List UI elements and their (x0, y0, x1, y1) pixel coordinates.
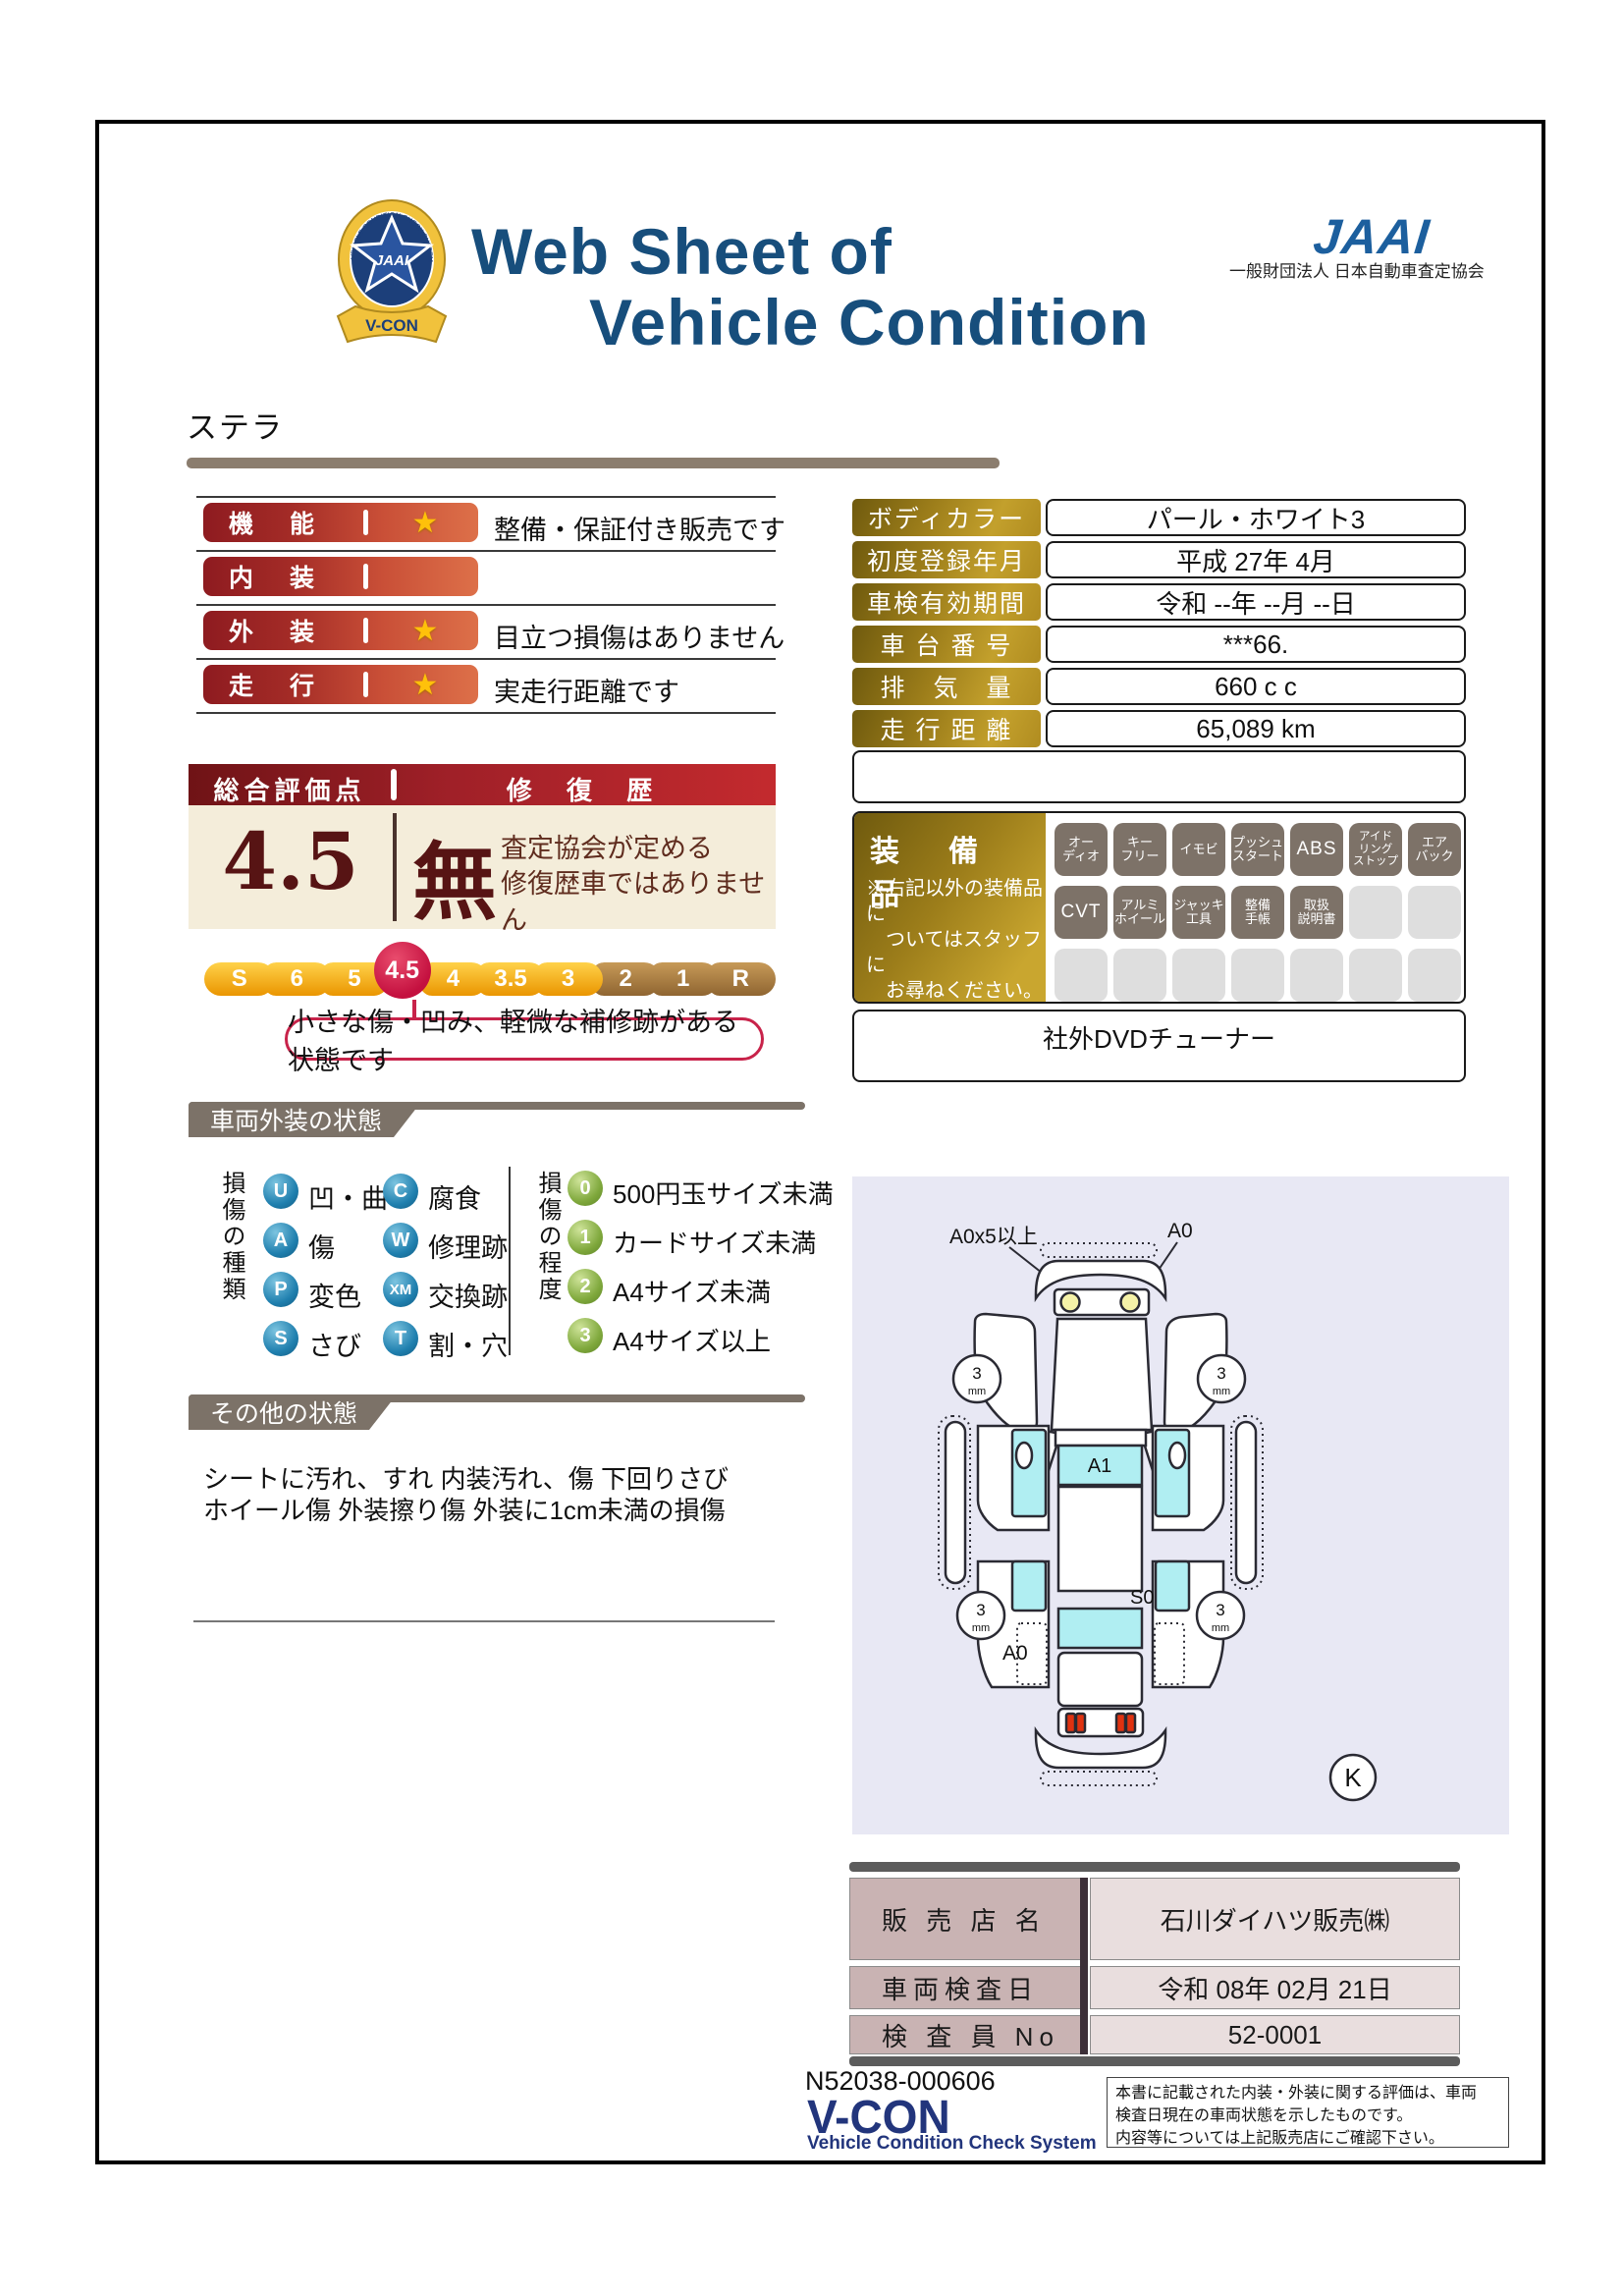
star-icon: ★ (396, 668, 455, 702)
wheel-depth-value: 3 (972, 1364, 981, 1383)
damage-type-axis: 損傷の種類 (214, 1171, 248, 1303)
legend-divider (509, 1167, 511, 1355)
degree-code-1: 1 (568, 1220, 603, 1255)
degree-code-3: 3 (568, 1318, 603, 1353)
rule (196, 712, 776, 714)
wheel-depth-unit: mm (1213, 1386, 1230, 1397)
equipment-badge-cvt: CVT (1055, 886, 1108, 939)
equipment-badge-empty (1349, 886, 1402, 939)
score-scale: S 6 5 4.5 4 3.5 3 2 1 R (204, 962, 776, 996)
equipment-badge-keyfree: キー フリー (1113, 823, 1166, 876)
store-value-inspection-date: 令和 08年 02月 21日 (1090, 1966, 1460, 2009)
car-diagram-panel: A0x5以上 A0 A1 S0 A0 3 mm 3 mm 3 mm 3 mm K (852, 1176, 1509, 1834)
equipment-badge-empty (1231, 949, 1284, 1002)
diagram-label-a0x5: A0x5以上 (949, 1226, 1038, 1248)
equipment-badge-abs: ABS (1290, 823, 1343, 876)
diagram-label-a0-front: A0 (1167, 1220, 1193, 1242)
equipment-badge-immobilizer: イモビ (1172, 823, 1225, 876)
diagram-label-a0-rear: A0 (1002, 1642, 1028, 1665)
sheet-title-line1: Web Sheet of (471, 214, 893, 289)
equipment-badge-servicebook: 整備 手帳 (1231, 886, 1284, 939)
degree-code-2: 2 (568, 1269, 603, 1304)
rating-comment: 実走行距離です (494, 671, 818, 709)
equipment-badge-pushstart: プッシュ スタート (1231, 823, 1284, 876)
wheel-depth-value: 3 (1217, 1364, 1225, 1383)
rating-label: 外 装 (229, 613, 347, 648)
equipment-badge-empty (1290, 949, 1343, 1002)
store-table-bottombar (849, 2056, 1460, 2066)
store-label-inspector-no: 検 査 員 No (849, 2015, 1082, 2054)
star-icon: ★ (396, 506, 455, 540)
section-header-exterior: 車両外装の状態 (189, 1102, 421, 1137)
badge-jaai-text: JAAI (375, 252, 409, 269)
wheel-depth-unit: mm (968, 1386, 986, 1397)
rule (196, 550, 776, 552)
equipment-badge-audio: オー ディオ (1055, 823, 1108, 876)
wheel-depth-unit: mm (972, 1622, 990, 1634)
equipment-badge-idlingstop: アイド リング ストップ (1349, 823, 1402, 876)
rating-comment: 整備・保証付き販売です (494, 509, 818, 547)
rating-divider (363, 672, 368, 697)
store-table-topbar (849, 1862, 1460, 1872)
damage-code-xm: XM (383, 1272, 418, 1307)
car-exploded-diagram: A0x5以上 A0 A1 S0 A0 3 mm 3 mm 3 mm 3 mm K (852, 1176, 1509, 1834)
degree-label: 500円玉サイズ未満 (613, 1175, 834, 1211)
rating-divider (363, 510, 368, 535)
diagram-label-s0: S0 (1130, 1587, 1154, 1609)
damage-label: さび (308, 1325, 361, 1363)
store-value-dealer: 石川ダイハツ販売㈱ (1090, 1878, 1460, 1960)
info-value-displacement: 660 c c (1046, 668, 1466, 705)
rule (196, 658, 776, 660)
overall-score-header: 総合評価点 修 復 歴 (189, 764, 776, 805)
vcon-badge-logo: VEHICLE CONDITION CHECK SYSTEM JAAI V-CO… (326, 196, 458, 363)
info-label-chassis-number: 車 台 番 号 (852, 626, 1041, 663)
wheel-depth-unit: mm (1212, 1622, 1229, 1634)
extra-equipment-note: 社外DVDチューナー (852, 1010, 1466, 1082)
wheel-depth-value: 3 (1216, 1601, 1224, 1619)
damage-label: 腐食 (428, 1177, 481, 1216)
equipment-note: ※右記以外の装備品に ついてはスタッフに お尋ねください。 (866, 876, 1046, 1004)
rule (196, 496, 776, 498)
info-label-displacement: 排 気 量 (852, 668, 1041, 705)
degree-label: A4サイズ未満 (613, 1273, 771, 1309)
store-table-divider (1080, 1878, 1088, 2054)
scale-item-selected: 4.5 (374, 942, 431, 999)
equipment-badge-jack: ジャッキ 工具 (1172, 886, 1225, 939)
damage-code-c: C (383, 1174, 418, 1209)
damage-label: 交換跡 (428, 1276, 508, 1314)
diagram-label-a1: A1 (1088, 1455, 1111, 1477)
degree-code-0: 0 (568, 1171, 603, 1206)
scale-item-s: S (204, 962, 275, 996)
equipment-badge-empty (1408, 886, 1461, 939)
rating-divider (363, 564, 368, 589)
badge-vcon-text: V-CON (365, 316, 418, 335)
rating-divider (363, 618, 368, 643)
repair-history-value: 無 (412, 813, 497, 936)
divider-bar (187, 458, 1000, 468)
damage-label: 変色 (308, 1276, 361, 1314)
damage-code-u: U (263, 1174, 298, 1209)
sheet-frame (95, 120, 1545, 2164)
rating-row-exterior: 外 装 ★ (203, 611, 478, 650)
info-value-body-color: パール・ホワイト3 (1046, 499, 1466, 536)
vehicle-name: ステラ (187, 403, 284, 447)
equipment-badge-empty (1349, 949, 1402, 1002)
rating-label: 機 能 (229, 505, 347, 540)
info-value-inspection-period: 令和 --年 --月 --日 (1046, 583, 1466, 621)
rating-comment: 目立つ損傷はありません (494, 617, 818, 655)
equipment-badge-empty (1113, 949, 1166, 1002)
sheet-title-line2: Vehicle Condition (589, 285, 1150, 359)
degree-label: カードサイズ未満 (613, 1224, 816, 1260)
section-header-other: その他の状態 (189, 1394, 397, 1430)
rule (193, 1620, 775, 1622)
rating-label: 走 行 (229, 667, 347, 702)
diagram-key-mark: K (1344, 1763, 1362, 1792)
damage-code-t: T (383, 1321, 418, 1356)
equipment-grid: オー ディオ キー フリー イモビ プッシュ スタート ABS アイド リング … (1055, 823, 1461, 1002)
repair-history-note: 査定協会が定める 修復歴車ではありません (501, 831, 776, 938)
overall-score-body: 4.5 無 査定協会が定める 修復歴車ではありません (189, 805, 776, 929)
rating-label: 内 装 (229, 559, 347, 594)
overall-score-value: 4.5 (189, 815, 393, 907)
damage-label: 修理跡 (428, 1227, 508, 1265)
score-callout: 小さな傷・凹み、軽微な補修跡がある状態です (285, 1017, 764, 1061)
info-label-first-registration: 初度登録年月 (852, 541, 1041, 578)
empty-info-cell (852, 750, 1466, 803)
equipment-badge-empty (1408, 949, 1461, 1002)
damage-code-w: W (383, 1223, 418, 1258)
equipment-box: 装 備 品 ※右記以外の装備品に ついてはスタッフに お尋ねください。 オー デ… (852, 811, 1466, 1004)
info-label-mileage: 走 行 距 離 (852, 710, 1041, 747)
degree-label: A4サイズ以上 (613, 1322, 771, 1358)
damage-code-s: S (263, 1321, 298, 1356)
damage-code-p: P (263, 1272, 298, 1307)
repair-history-title: 修 復 歴 (397, 771, 776, 807)
equipment-badge-empty (1055, 949, 1108, 1002)
jaai-organization-name: 一般財団法人 日本自動車査定協会 (1229, 257, 1485, 282)
equipment-badge-alloywheel: アルミ ホイール (1113, 886, 1166, 939)
damage-label: 凹・曲 (308, 1177, 388, 1216)
vehicle-condition-sheet: VEHICLE CONDITION CHECK SYSTEM JAAI V-CO… (0, 0, 1623, 2296)
info-value-mileage: 65,089 km (1046, 710, 1466, 747)
damage-label: 割・穴 (428, 1325, 508, 1363)
rule (196, 604, 776, 606)
footer-disclaimer: 本書に記載された内装・外装に関する評価は、車両 検査日現在の車両状態を示したもの… (1107, 2077, 1509, 2148)
star-icon: ★ (396, 614, 455, 648)
equipment-badge-airbag: エア バック (1408, 823, 1461, 876)
equipment-title-panel: 装 備 品 ※右記以外の装備品に ついてはスタッフに お尋ねください。 (854, 813, 1046, 1002)
info-value-chassis-number: ***66. (1046, 626, 1466, 663)
rating-row-interior: 内 装 (203, 557, 478, 596)
store-label-dealer: 販 売 店 名 (849, 1878, 1082, 1960)
info-label-inspection-period: 車検有効期間 (852, 583, 1041, 621)
info-value-first-registration: 平成 27年 4月 (1046, 541, 1466, 578)
other-condition-line2: ホイール傷 外装擦り傷 外装に1cm未満の損傷 (203, 1491, 726, 1527)
rating-row-mileage: 走 行 ★ (203, 665, 478, 704)
vcon-logo-subtitle: Vehicle Condition Check System (807, 2133, 1097, 2155)
rating-row-function: 機 能 ★ (203, 503, 478, 542)
damage-label: 傷 (308, 1227, 335, 1265)
damage-degree-axis: 損傷の程度 (530, 1171, 565, 1303)
damage-code-a: A (263, 1223, 298, 1258)
equipment-badge-manual: 取扱 説明書 (1290, 886, 1343, 939)
body-divider (393, 813, 397, 921)
equipment-badge-empty (1172, 949, 1225, 1002)
overall-score-title: 総合評価点 (189, 771, 391, 807)
info-label-body-color: ボディカラー (852, 499, 1041, 536)
store-label-inspection-date: 車両検査日 (849, 1966, 1082, 2009)
store-value-inspector-no: 52-0001 (1090, 2015, 1460, 2054)
wheel-depth-value: 3 (976, 1601, 985, 1619)
